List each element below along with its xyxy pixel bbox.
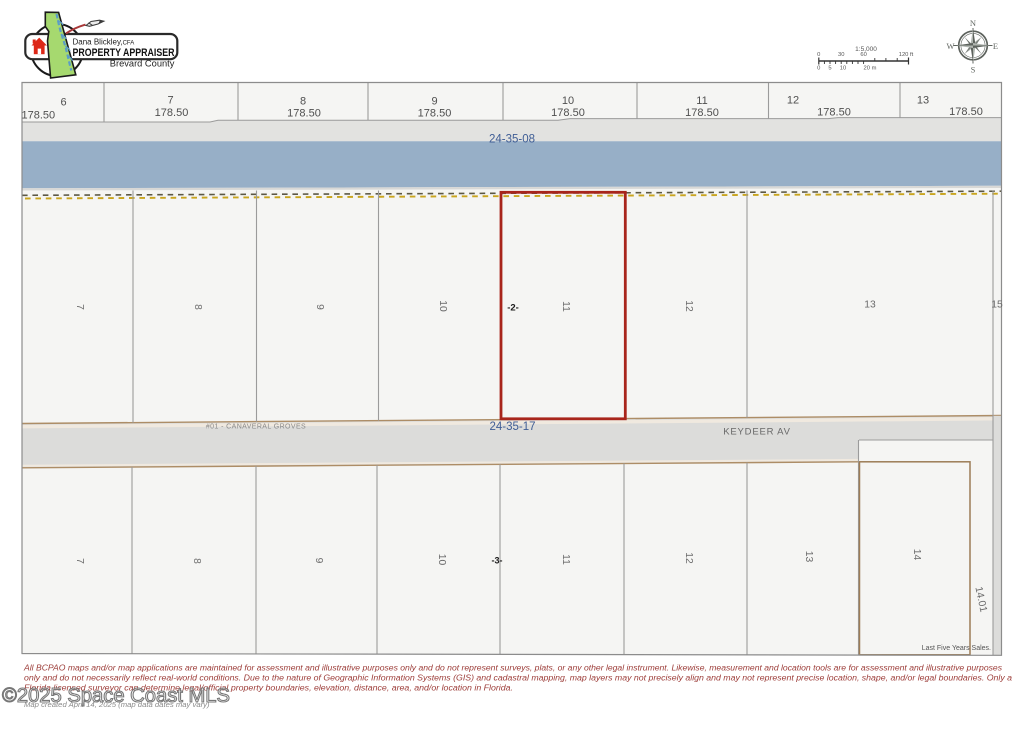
svg-text:14: 14 xyxy=(911,549,922,561)
svg-text:All BCPAO maps and/or map appl: All BCPAO maps and/or map applications a… xyxy=(23,662,1003,672)
svg-text:20 m: 20 m xyxy=(864,66,877,72)
svg-text:10: 10 xyxy=(437,300,448,312)
svg-text:11: 11 xyxy=(560,554,571,565)
svg-text:13: 13 xyxy=(864,299,876,310)
svg-text:178.50: 178.50 xyxy=(685,107,719,119)
svg-text:0: 0 xyxy=(817,66,820,72)
svg-text:N: N xyxy=(970,18,976,28)
svg-text:24-35-17: 24-35-17 xyxy=(490,421,536,433)
svg-text:Last Five Years Sales.: Last Five Years Sales. xyxy=(922,645,991,652)
svg-text:11: 11 xyxy=(696,95,707,107)
svg-text:178.50: 178.50 xyxy=(817,106,851,118)
svg-text:9: 9 xyxy=(314,304,325,310)
svg-text:24-35-08: 24-35-08 xyxy=(489,134,535,146)
svg-text:7: 7 xyxy=(167,95,173,107)
svg-text:9: 9 xyxy=(313,558,324,564)
svg-text:13: 13 xyxy=(917,94,929,106)
svg-text:7: 7 xyxy=(74,558,85,564)
svg-text:PROPERTY APPRAISER: PROPERTY APPRAISER xyxy=(73,47,175,59)
svg-text:178.50: 178.50 xyxy=(551,107,585,119)
svg-text:Brevard County: Brevard County xyxy=(110,59,175,69)
svg-text:10: 10 xyxy=(562,95,574,107)
svg-text:12: 12 xyxy=(683,552,694,564)
svg-text:S: S xyxy=(971,65,976,75)
svg-text:5: 5 xyxy=(828,66,831,72)
svg-text:8: 8 xyxy=(192,304,203,310)
svg-text:10: 10 xyxy=(840,66,846,72)
svg-text:6: 6 xyxy=(60,97,66,109)
svg-text:12: 12 xyxy=(787,95,799,107)
svg-text:©2025 Space Coast MLS: ©2025 Space Coast MLS xyxy=(2,684,230,707)
svg-text:178.50: 178.50 xyxy=(22,109,56,121)
svg-text:-3-: -3- xyxy=(492,555,503,565)
svg-text:60: 60 xyxy=(860,52,866,58)
svg-text:#01 - CANAVERAL GROVES: #01 - CANAVERAL GROVES xyxy=(206,423,306,430)
svg-text:178.50: 178.50 xyxy=(287,108,321,120)
svg-text:8: 8 xyxy=(300,96,306,108)
svg-text:10: 10 xyxy=(436,554,447,566)
svg-text:178.50: 178.50 xyxy=(949,106,983,118)
svg-text:0: 0 xyxy=(817,52,820,58)
svg-text:only and do not necessarily re: only and do not necessarily reflect real… xyxy=(24,672,1012,682)
svg-text:120 ft: 120 ft xyxy=(899,52,914,58)
svg-text:15: 15 xyxy=(991,299,1003,310)
svg-text:12: 12 xyxy=(683,300,694,312)
svg-text:7: 7 xyxy=(74,304,85,310)
svg-text:-2-: -2- xyxy=(507,302,519,313)
svg-text:KEYDEER AV: KEYDEER AV xyxy=(723,427,791,438)
svg-text:178.50: 178.50 xyxy=(418,108,452,120)
svg-text:178.50: 178.50 xyxy=(155,107,189,119)
svg-text:8: 8 xyxy=(191,558,202,564)
svg-text:13: 13 xyxy=(803,551,814,563)
svg-text:11: 11 xyxy=(560,301,571,312)
svg-text:E: E xyxy=(993,41,998,51)
svg-text:9: 9 xyxy=(431,96,437,108)
svg-text:30: 30 xyxy=(838,52,844,58)
svg-text:W: W xyxy=(946,41,954,51)
